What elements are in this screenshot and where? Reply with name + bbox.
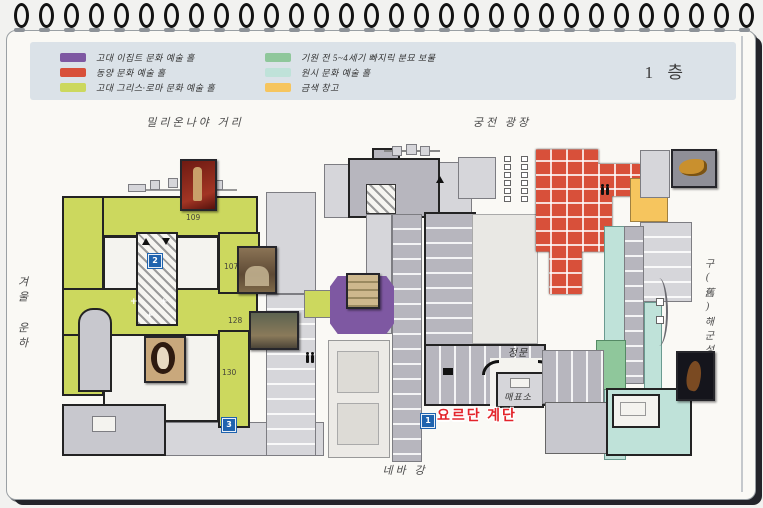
spiral-loop (12, 1, 27, 35)
spiral-ring (39, 3, 54, 28)
spiral-ring (439, 3, 454, 28)
spiral-hole (389, 28, 400, 32)
spiral-hole (264, 28, 275, 32)
stairs-people-icon (306, 350, 316, 368)
colonnade-dot (504, 164, 511, 170)
spiral-ring (164, 3, 179, 28)
colonnade-block (420, 146, 430, 156)
spiral-loop (537, 1, 552, 35)
spiral-hole (114, 28, 125, 32)
stage-inner (620, 402, 646, 416)
spiral-loop (187, 1, 202, 35)
legend-item-egypt: 고대 이집트 문화 예술 홀 (60, 50, 265, 65)
portico-step (128, 184, 146, 192)
spiral-ring (664, 3, 679, 28)
route-marker-2: 2 (148, 254, 162, 268)
annex-room (92, 416, 116, 432)
colonnade-dot (504, 196, 511, 202)
legend-label: 금색 창고 (301, 81, 339, 94)
dark-figurine-photo (676, 351, 715, 401)
spiral-ring (339, 3, 354, 28)
spiral-ring (64, 3, 79, 28)
gold-storage-color-swatch (265, 83, 291, 92)
floor-title: 1 층 (645, 58, 688, 83)
spiral-hole (414, 28, 425, 32)
spiral-loop (37, 1, 52, 35)
spiral-ring (14, 3, 29, 28)
spiral-ring (89, 3, 104, 28)
room-number-128: 128 (228, 316, 242, 325)
spiral-loop (587, 1, 602, 35)
hall-interior-photo-2 (249, 311, 299, 350)
spiral-hole (464, 28, 475, 32)
staircase-2-well (136, 232, 178, 326)
colonnade-dot (521, 164, 528, 170)
spiral-ring (139, 3, 154, 28)
spiral-hole (714, 28, 725, 32)
main-gate-label: 정문 (496, 344, 540, 359)
portico-column (150, 180, 160, 190)
spiral-ring (264, 3, 279, 28)
legend-label: 원시 문화 예술 홀 (301, 66, 371, 79)
greece-rome-color-swatch (60, 83, 86, 92)
spiral-hole (139, 28, 150, 32)
spiral-loop (462, 1, 477, 35)
spiral-ring (639, 3, 654, 28)
millionnaya-street-label: 밀리온나야 거리 (115, 114, 275, 130)
ticket-office-label: 매표소 (494, 390, 542, 403)
spiral-loop (237, 1, 252, 35)
cameo-artifact-photo (144, 336, 186, 383)
winter-canal-label: 겨울 운하 (14, 276, 30, 376)
info-desk-icon (443, 368, 453, 375)
spiral-loop (712, 1, 727, 35)
cross-mark: + (130, 298, 138, 307)
pazyryk-color-swatch (265, 53, 291, 62)
spiral-ring (414, 3, 429, 28)
spiral-loop (262, 1, 277, 35)
floor-map: 고대 이집트 문화 예술 홀 동양 문화 예술 홀 고대 그리스·로마 문화 예… (0, 0, 763, 508)
colonnade-dot (521, 172, 528, 178)
legend-label: 동양 문화 예술 홀 (96, 66, 166, 79)
spiral-hole (564, 28, 575, 32)
legend-label: 고대 이집트 문화 예술 홀 (96, 51, 195, 64)
spiral-hole (14, 28, 25, 32)
cross-mark: + (160, 298, 168, 307)
spiral-hole (164, 28, 175, 32)
garden-terrace (328, 340, 390, 458)
spiral-loop (687, 1, 702, 35)
spiral-hole (339, 28, 350, 32)
spiral-loop (112, 1, 127, 35)
colonnade-dot (521, 156, 528, 162)
spiral-hole (89, 28, 100, 32)
spiral-hole (689, 28, 700, 32)
spiral-ring (564, 3, 579, 28)
entrance-west-block (424, 212, 476, 348)
spiral-hole (614, 28, 625, 32)
spiral-ring (689, 3, 704, 28)
colonnade-block (406, 144, 417, 155)
spiral-hole (589, 28, 600, 32)
terrace-inner (337, 403, 379, 445)
hanging-garden-east-gallery (392, 214, 422, 462)
cross-mark: + (146, 312, 154, 321)
spiral-loop (287, 1, 302, 35)
spiral-hole (189, 28, 200, 32)
route-marker-1: 1 (421, 414, 435, 428)
spiral-loop (512, 1, 527, 35)
spiral-ring (364, 3, 379, 28)
northeast-annex (640, 150, 670, 198)
stair-direction-icon (142, 238, 150, 245)
spiral-hole (239, 28, 250, 32)
spiral-ring (389, 3, 404, 28)
spiral-hole (64, 28, 75, 32)
neva-river-label: 네바 강 (350, 462, 460, 478)
spiral-hole (664, 28, 675, 32)
spiral-ring (589, 3, 604, 28)
colonnade-dot (521, 188, 528, 194)
hall-interior-photo (237, 246, 277, 294)
egypt-color-swatch (60, 53, 86, 62)
east-corridor (624, 226, 644, 384)
spiral-ring (214, 3, 229, 28)
colonnade-dot (504, 172, 511, 178)
scanned-notebook-photo: 고대 이집트 문화 예술 홀 동양 문화 예술 홀 고대 그리스·로마 문화 예… (0, 0, 763, 508)
entrance-courtyard (472, 214, 538, 344)
spiral-loop (412, 1, 427, 35)
spiral-loop (637, 1, 652, 35)
spiral-hole (289, 28, 300, 32)
cameo-profile (157, 347, 169, 369)
spiral-hole (489, 28, 500, 32)
spiral-ring (314, 3, 329, 28)
spiral-hole (739, 28, 750, 32)
arc-pier (656, 316, 664, 324)
terrace-inner (337, 351, 379, 393)
spiral-ring (514, 3, 529, 28)
spiral-hole (439, 28, 450, 32)
stair-triangle-icon (436, 176, 444, 183)
gold-stag-artifact-photo (671, 149, 717, 188)
spiral-hole (539, 28, 550, 32)
statue-figure (193, 167, 202, 201)
hall-arch (245, 266, 269, 286)
figurine-shape (684, 360, 704, 392)
palace-square-label: 궁전 광장 (452, 114, 552, 130)
spiral-loop (737, 1, 752, 35)
spiral-loop (362, 1, 377, 35)
pavilion-staircase (366, 184, 396, 214)
route-marker-3: 3 (222, 418, 236, 432)
spiral-ring (739, 3, 754, 28)
ticket-window (510, 378, 530, 388)
colonnade-dot (521, 180, 528, 186)
canal-arc (650, 278, 668, 346)
spiral-loop (312, 1, 327, 35)
spiral-ring (539, 3, 554, 28)
room-number-130: 130 (222, 368, 236, 377)
spiral-ring (614, 3, 629, 28)
spiral-loop (387, 1, 402, 35)
legend-label: 고대 그리스·로마 문화 예술 홀 (96, 81, 215, 94)
colonnade-dot (504, 188, 511, 194)
apse-structure (78, 308, 112, 392)
spiral-binding (12, 1, 752, 35)
colonnade-dot (504, 156, 511, 162)
spiral-loop (562, 1, 577, 35)
spiral-loop (437, 1, 452, 35)
statue-artifact-photo (180, 159, 217, 211)
colonnade-block (392, 146, 402, 156)
greece-rome-hall-130 (218, 330, 250, 428)
greece-rome-connector (304, 290, 334, 318)
spiral-loop (162, 1, 177, 35)
theatre-stage-box (612, 394, 660, 428)
spiral-hole (214, 28, 225, 32)
legend-band: 고대 이집트 문화 예술 홀 동양 문화 예술 홀 고대 그리스·로마 문화 예… (30, 42, 736, 100)
stairs-people-icon (601, 182, 611, 200)
spiral-hole (639, 28, 650, 32)
spiral-loop (212, 1, 227, 35)
legend-item-gold-storage: 금색 창고 (265, 80, 470, 95)
legend-label: 기원 전 5~4세기 빠지릭 분묘 보물 (301, 51, 435, 64)
arc-pier (656, 298, 664, 306)
legend-item-orient: 동양 문화 예술 홀 (60, 65, 265, 80)
gold-stag-figure (679, 159, 707, 176)
spiral-loop (487, 1, 502, 35)
spiral-loop (137, 1, 152, 35)
orient-color-swatch (60, 68, 86, 77)
legend-item-primitive: 원시 문화 예술 홀 (265, 65, 470, 80)
spiral-hole (364, 28, 375, 32)
serrated-annex (458, 157, 496, 199)
spiral-ring (114, 3, 129, 28)
primitive-color-swatch (265, 68, 291, 77)
egypt-relief-photo (346, 273, 380, 309)
spiral-ring (239, 3, 254, 28)
spiral-ring (464, 3, 479, 28)
spiral-loop (662, 1, 677, 35)
spiral-ring (489, 3, 504, 28)
room-number-109: 109 (186, 213, 200, 222)
south-link-rooms (542, 350, 604, 404)
spiral-loop (612, 1, 627, 35)
spiral-hole (314, 28, 325, 32)
legend-list: 고대 이집트 문화 예술 홀 동양 문화 예술 홀 고대 그리스·로마 문화 예… (60, 50, 470, 95)
portico-column (168, 178, 178, 188)
spiral-hole (514, 28, 525, 32)
colonnade-dot (504, 180, 511, 186)
legend-item-greece-rome: 고대 그리스·로마 문화 예술 홀 (60, 80, 265, 95)
spiral-ring (189, 3, 204, 28)
jordan-staircase-label: 요르단 계단 (437, 405, 517, 425)
legend-item-pazyryk: 기원 전 5~4세기 빠지릭 분묘 보물 (265, 50, 470, 65)
colonnade-dot (521, 196, 528, 202)
spiral-ring (714, 3, 729, 28)
spiral-hole (39, 28, 50, 32)
spiral-loop (62, 1, 77, 35)
spiral-loop (87, 1, 102, 35)
spiral-loop (337, 1, 352, 35)
stair-direction-icon (162, 238, 170, 245)
spiral-ring (289, 3, 304, 28)
